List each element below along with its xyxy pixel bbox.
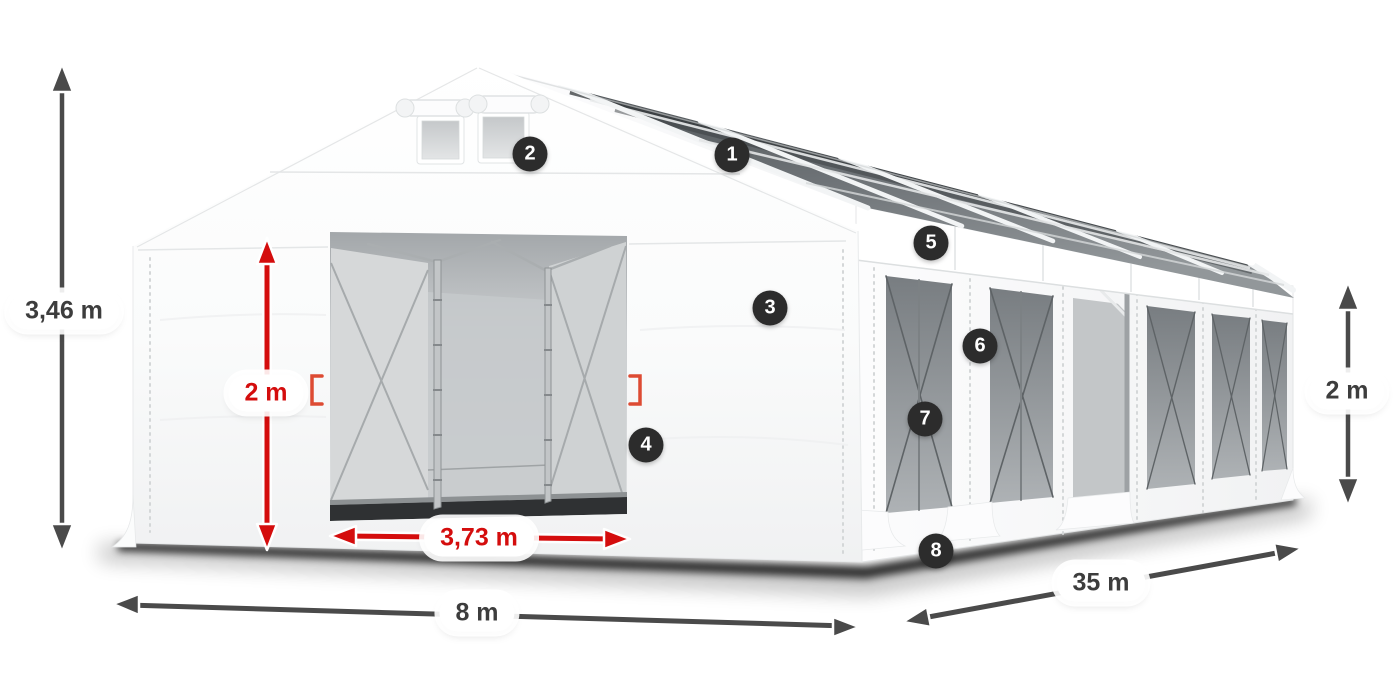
- hotspot-badge-2[interactable]: 2: [513, 137, 548, 172]
- dimension-label-front-width: 8 m: [439, 595, 514, 632]
- hotspot-badge-6[interactable]: 6: [963, 329, 998, 364]
- entrance-opening: [312, 232, 640, 521]
- hotspot-badge-4[interactable]: 4: [629, 428, 664, 463]
- dimension-label-entrance-height: 2 m: [228, 375, 303, 412]
- hotspot-badge-1[interactable]: 1: [715, 138, 750, 173]
- hotspot-badge-3[interactable]: 3: [753, 291, 788, 326]
- hotspot-badge-8[interactable]: 8: [919, 534, 954, 569]
- dimension-label-side-wall-height: 2 m: [1309, 373, 1384, 410]
- dimension-label-entrance-width: 3,73 m: [424, 520, 534, 557]
- tent-dimension-diagram: 3,46 m 2 m 3,73 m 8 m 35 m 2 m 1 2 3 4 5…: [0, 0, 1400, 700]
- dimension-label-total-height: 3,46 m: [9, 293, 119, 330]
- hotspot-badge-5[interactable]: 5: [914, 226, 949, 261]
- tent-illustration: [0, 0, 1400, 700]
- hotspot-badge-7[interactable]: 7: [908, 402, 943, 437]
- dimension-label-side-length: 35 m: [1057, 565, 1146, 602]
